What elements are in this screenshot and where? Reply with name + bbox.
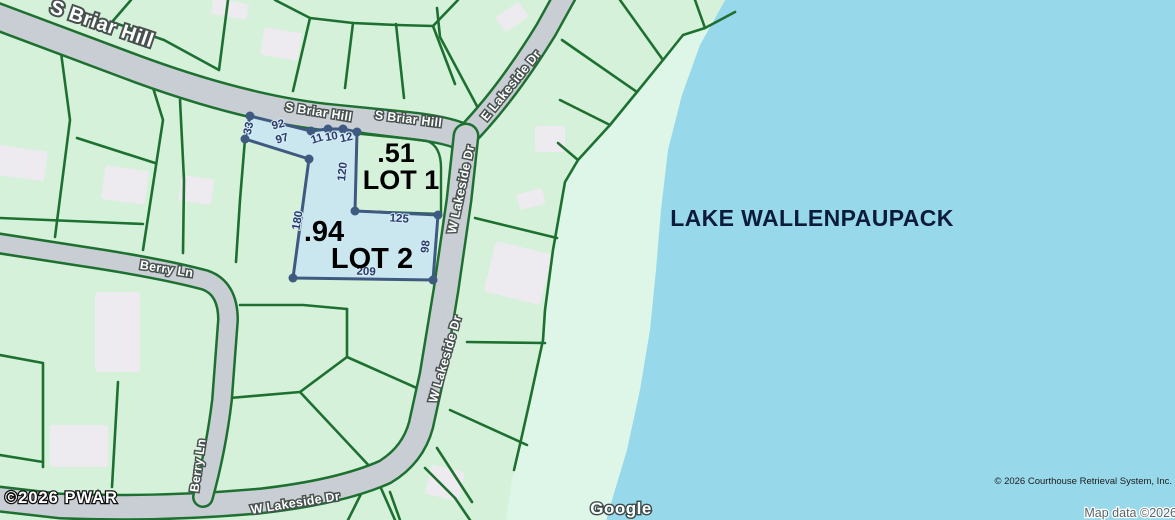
parcel-map[interactable]: 33 92 97 11 10 12 120 125 98 180 209 .51… xyxy=(0,0,1175,520)
google-logo[interactable]: Google xyxy=(590,499,652,518)
crs-attribution: © 2026 Courthouse Retrieval System, Inc. xyxy=(994,476,1172,487)
lake-name-label: LAKE WALLENPAUPACK xyxy=(670,205,954,231)
map-data-attribution: Map data ©2026 xyxy=(1084,506,1175,520)
lake-water xyxy=(605,0,1175,520)
lot2-name-label: LOT 2 xyxy=(331,243,413,275)
pwar-watermark: ©2026 PWAR xyxy=(5,489,118,507)
lot1-acreage-label: .51 xyxy=(377,138,415,168)
building-footprint xyxy=(101,165,149,205)
dim-label-98: 98 xyxy=(419,239,433,254)
dim-label-10: 10 xyxy=(324,130,339,144)
building-footprint xyxy=(535,126,565,152)
building-footprint xyxy=(50,425,108,467)
dim-label-120: 120 xyxy=(336,162,350,182)
dim-label-125: 125 xyxy=(389,212,410,225)
building-footprint xyxy=(95,292,140,372)
lot1-name-label: LOT 1 xyxy=(363,165,440,195)
map-canvas[interactable]: 33 92 97 11 10 12 120 125 98 180 209 .51… xyxy=(0,0,1175,520)
